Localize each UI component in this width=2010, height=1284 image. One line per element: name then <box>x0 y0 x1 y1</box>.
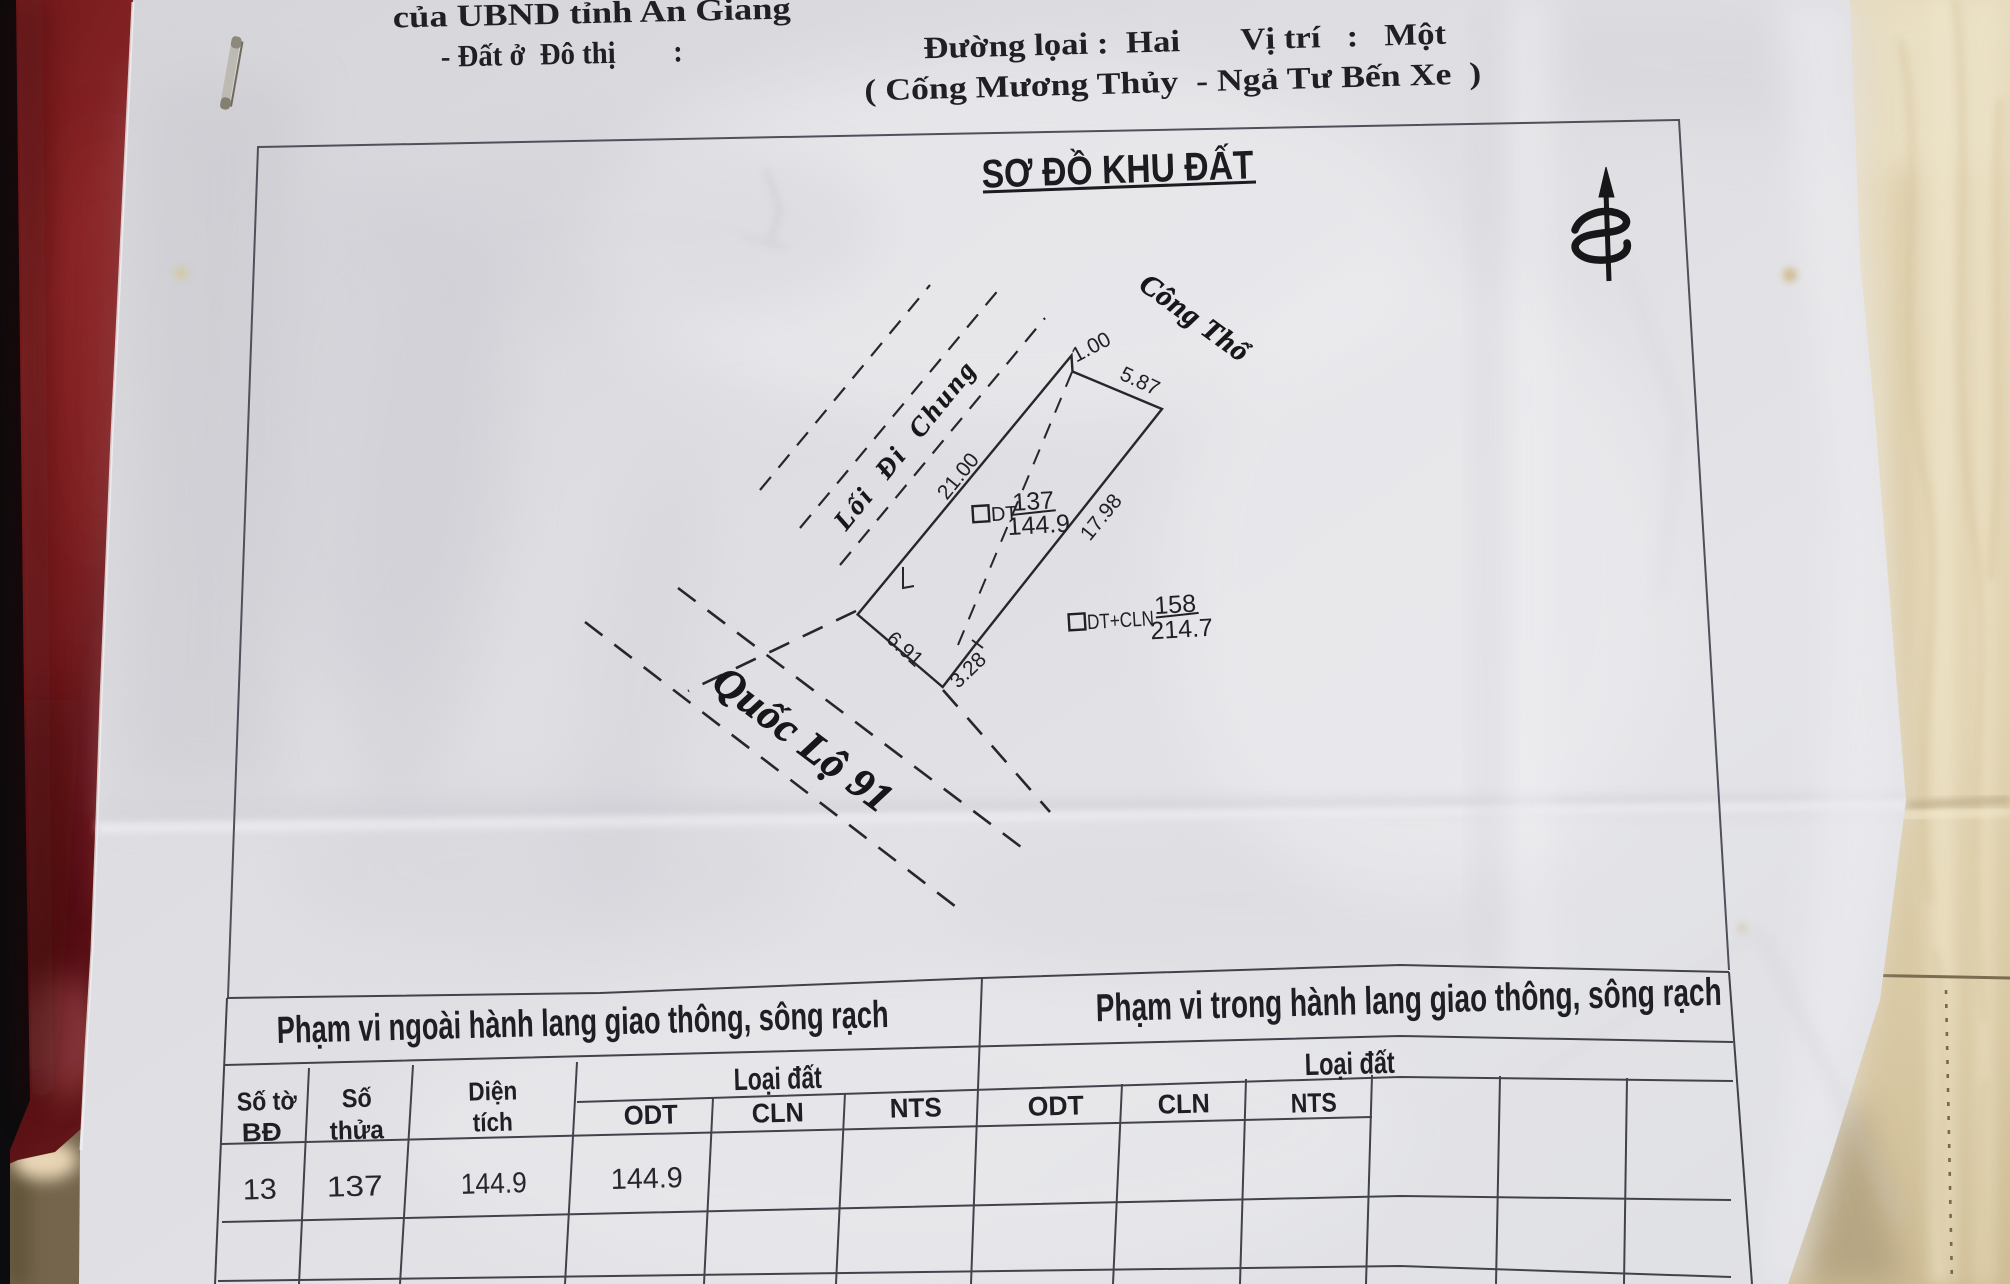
svg-text:Số: Số <box>341 1083 372 1114</box>
svg-text:CLN: CLN <box>751 1097 804 1128</box>
svg-text:CLN: CLN <box>1157 1088 1210 1119</box>
svg-text:BĐ: BĐ <box>241 1116 282 1147</box>
svg-text:DT+CLN: DT+CLN <box>1086 607 1154 634</box>
svg-text:144.9: 144.9 <box>1007 509 1071 541</box>
svg-text:144.9: 144.9 <box>460 1167 527 1201</box>
svg-text:NTS: NTS <box>889 1092 942 1123</box>
svg-text:214.7: 214.7 <box>1150 614 1214 646</box>
svg-text:137: 137 <box>326 1170 383 1203</box>
svg-text:13: 13 <box>242 1174 277 1207</box>
svg-text:ODT: ODT <box>623 1099 678 1130</box>
svg-text:thửa: thửa <box>329 1114 384 1145</box>
svg-text:tích: tích <box>472 1106 513 1137</box>
svg-text:Loại đất: Loại đất <box>1304 1045 1395 1082</box>
svg-text:NTS: NTS <box>1290 1087 1337 1118</box>
svg-text:Loại đất: Loại đất <box>733 1060 822 1097</box>
svg-text:- Đất ở Đô thị :: - Đất ở Đô thị : <box>440 33 683 73</box>
svg-text:Số tờ: Số tờ <box>236 1085 297 1117</box>
svg-text:Diện: Diện <box>468 1075 518 1106</box>
svg-text:144.9: 144.9 <box>610 1162 683 1196</box>
svg-text:ODT: ODT <box>1027 1090 1084 1121</box>
